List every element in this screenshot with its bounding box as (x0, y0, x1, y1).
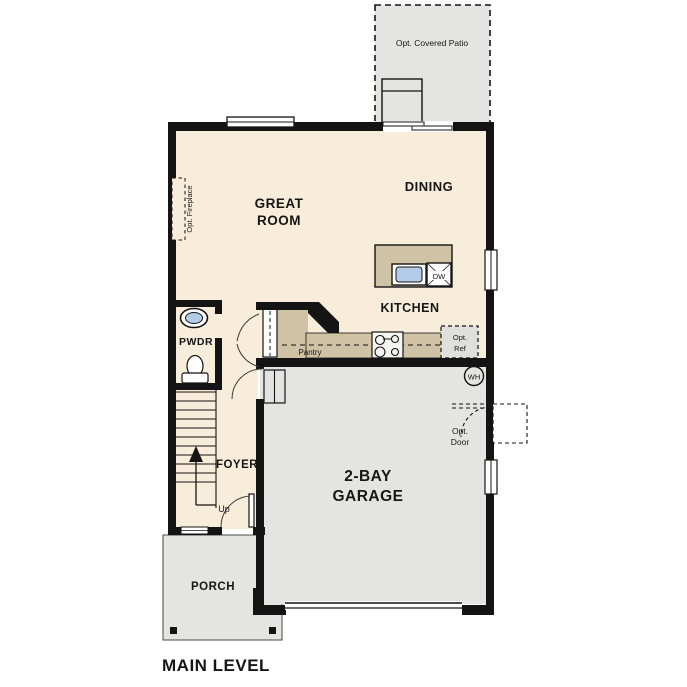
window-great-room (227, 117, 294, 127)
great-room-label-1: GREAT (255, 196, 304, 211)
dining-label: DINING (405, 179, 454, 194)
water-heater-icon: WH (465, 367, 484, 386)
fireplace-label: Opt. Fireplace (185, 185, 194, 232)
garage-label-2: GARAGE (332, 488, 403, 505)
opt-refrigerator: Opt. Ref (441, 326, 478, 358)
patio-label: Opt. Covered Patio (396, 38, 469, 48)
porch-post-left (170, 627, 177, 634)
patio-slider-door (383, 121, 453, 132)
garage-label-1: 2-BAY (344, 468, 392, 485)
porch-post-right (269, 627, 276, 634)
pwdr-label: PWDR (179, 336, 213, 348)
opt-fireplace: Opt. Fireplace (172, 178, 194, 240)
floor-plan-page: Opt. Covered Patio (0, 0, 687, 687)
powder-sink-icon (181, 309, 208, 328)
kitchen-island: DW (375, 245, 452, 287)
hall-foyer-floor (176, 300, 258, 529)
opt-door-label-1: Opt. (452, 426, 468, 436)
window-stairs (181, 527, 208, 534)
opt-ref-label-2: Ref (454, 344, 467, 353)
stove-icon (372, 332, 403, 358)
up-label: Up (218, 504, 230, 514)
window-garage (485, 460, 497, 494)
garage-door (285, 601, 462, 610)
page-title: MAIN LEVEL (162, 656, 270, 675)
garage-steps (264, 370, 285, 403)
island-sink-icon (392, 264, 426, 285)
floor-plan: Opt. Covered Patio (0, 0, 687, 687)
opt-ref-label-1: Opt. (453, 333, 467, 342)
pantry-label: Pantry (298, 348, 321, 357)
window-dining (485, 250, 497, 290)
patio-step (382, 79, 422, 122)
dishwasher-icon: DW (427, 263, 451, 286)
great-room-label-2: ROOM (257, 213, 301, 228)
covered-patio: Opt. Covered Patio (375, 5, 490, 123)
foyer-label: FOYER (216, 459, 258, 471)
dw-label: DW (433, 272, 446, 281)
opt-door-label-2: Door (451, 437, 470, 447)
wh-label: WH (468, 373, 481, 382)
kitchen-label: KITCHEN (380, 301, 439, 315)
porch-label: PORCH (191, 581, 235, 593)
